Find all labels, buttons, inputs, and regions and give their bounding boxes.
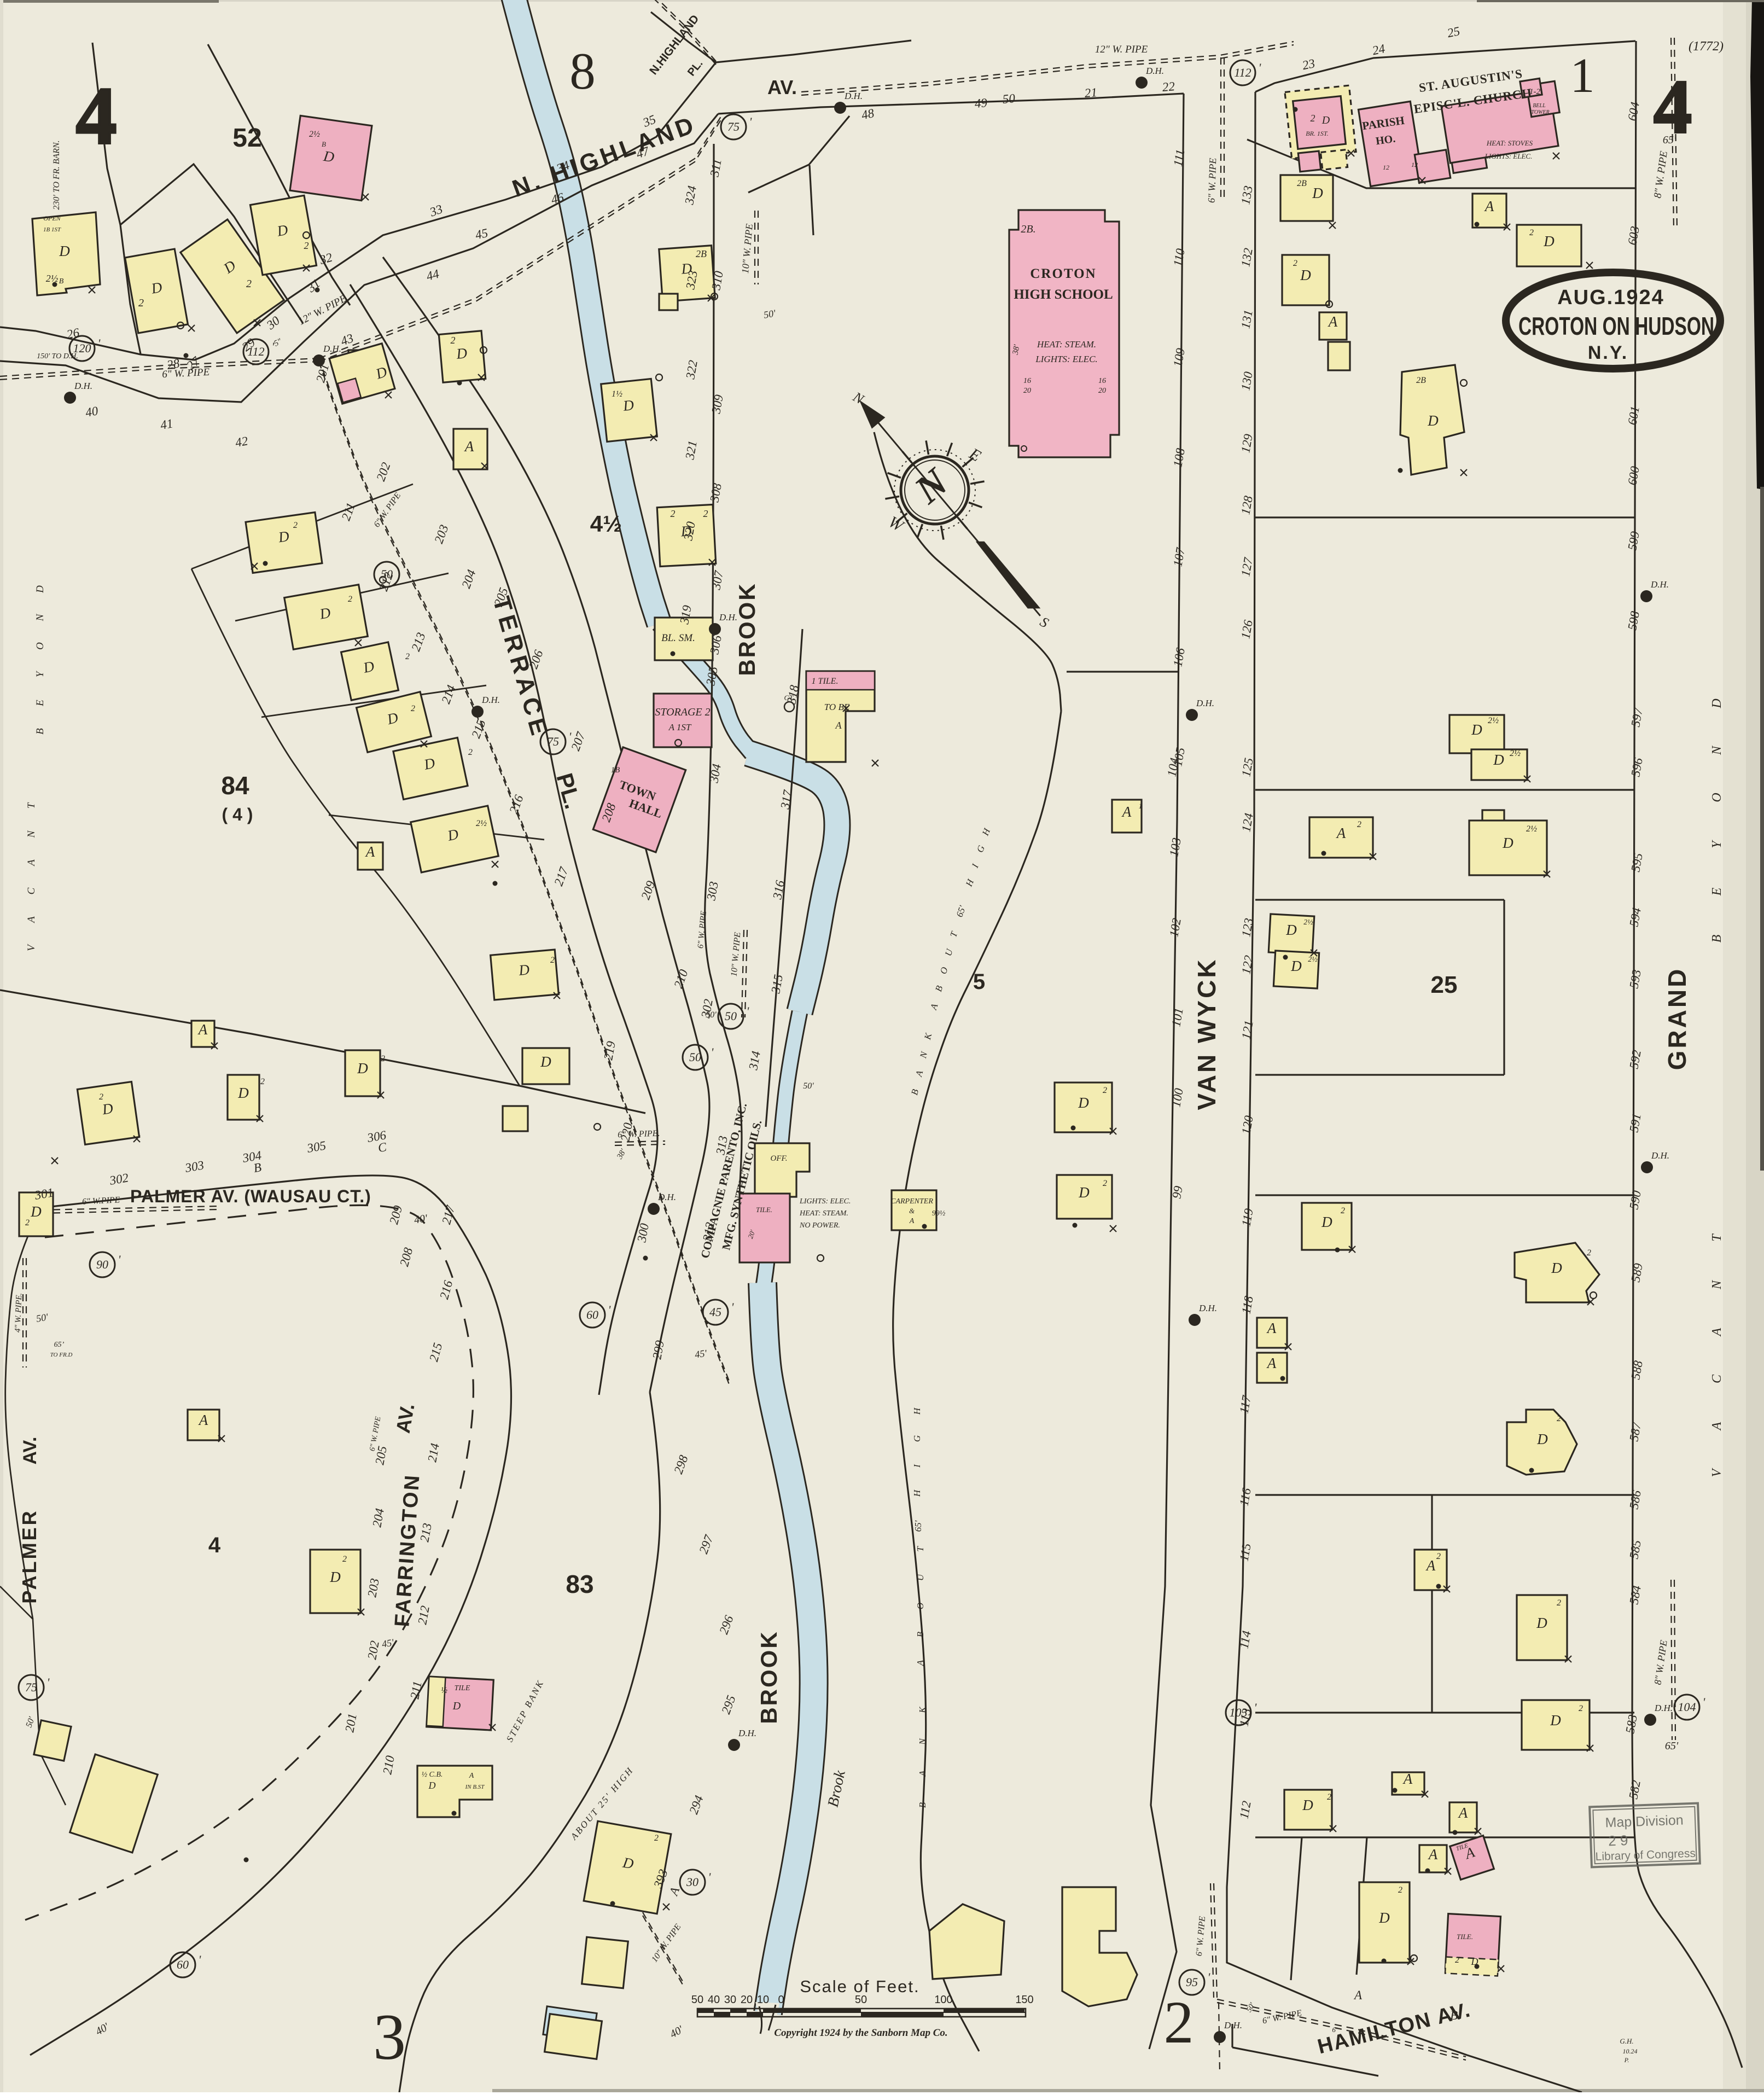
svg-text:T: T bbox=[915, 1546, 925, 1552]
svg-text:2: 2 bbox=[451, 335, 456, 346]
svg-text:B: B bbox=[34, 728, 46, 735]
svg-text:HEAT: STEAM.: HEAT: STEAM. bbox=[1037, 339, 1096, 350]
svg-text:D: D bbox=[1078, 1095, 1089, 1111]
svg-text:O: O bbox=[1710, 793, 1724, 802]
svg-text:D: D bbox=[237, 1085, 249, 1101]
svg-text:E: E bbox=[34, 700, 46, 707]
svg-text:U: U bbox=[915, 1573, 925, 1581]
svg-text:3: 3 bbox=[373, 2000, 406, 2073]
svg-text:A: A bbox=[1458, 1805, 1468, 1821]
svg-text:2: 2 bbox=[260, 1077, 265, 1086]
svg-text:CARPENTER: CARPENTER bbox=[890, 1197, 933, 1206]
svg-text:38': 38' bbox=[1011, 344, 1021, 356]
svg-text:2: 2 bbox=[1103, 1086, 1107, 1095]
svg-text:T: T bbox=[1710, 1233, 1724, 1242]
svg-text:D.H.: D.H. bbox=[1654, 1703, 1673, 1713]
svg-text:6" W.PIPE: 6" W.PIPE bbox=[82, 1195, 120, 1207]
svg-text:90: 90 bbox=[96, 1258, 108, 1271]
svg-text:100: 100 bbox=[934, 1994, 952, 2006]
svg-text:10.24: 10.24 bbox=[1623, 2047, 1638, 2055]
svg-text:P.: P. bbox=[1624, 2056, 1629, 2064]
svg-text:6': 6' bbox=[1332, 2026, 1337, 2034]
svg-text:2: 2 bbox=[703, 508, 708, 519]
svg-text:120: 120 bbox=[73, 341, 91, 355]
svg-text:12: 12 bbox=[1383, 164, 1389, 171]
svg-text:K: K bbox=[917, 1706, 928, 1714]
svg-text:10: 10 bbox=[757, 1994, 769, 2006]
svg-text:BL. SM.: BL. SM. bbox=[661, 632, 695, 644]
svg-text:6" W. PIPE: 6" W. PIPE bbox=[1206, 158, 1219, 203]
svg-text:40: 40 bbox=[708, 1994, 720, 2006]
svg-text:B.: B. bbox=[1450, 2009, 1461, 2022]
svg-text:2½: 2½ bbox=[1510, 749, 1521, 758]
svg-text:2: 2 bbox=[411, 704, 415, 713]
svg-text:D: D bbox=[1078, 1184, 1090, 1201]
svg-text:HEAT: STOVES: HEAT: STOVES bbox=[1486, 139, 1533, 147]
svg-text:HEAT: STEAM.: HEAT: STEAM. bbox=[799, 1209, 848, 1218]
svg-text:D.H.: D.H. bbox=[1651, 1150, 1669, 1161]
svg-text:84: 84 bbox=[221, 771, 249, 800]
svg-text:30: 30 bbox=[724, 1994, 736, 2006]
svg-text:B: B bbox=[915, 1631, 925, 1637]
svg-text:': ' bbox=[47, 1675, 50, 1689]
svg-text:45': 45' bbox=[694, 1347, 708, 1360]
svg-text:2: 2 bbox=[138, 297, 144, 309]
svg-text:N: N bbox=[917, 1738, 928, 1745]
svg-text:A: A bbox=[917, 1770, 928, 1777]
svg-text:2: 2 bbox=[1587, 1248, 1591, 1258]
svg-text:2: 2 bbox=[1436, 1552, 1441, 1561]
svg-text:D: D bbox=[455, 345, 468, 362]
svg-text:AV.: AV. bbox=[20, 1436, 40, 1464]
svg-text:20: 20 bbox=[741, 1994, 753, 2006]
svg-text:50: 50 bbox=[691, 1994, 703, 2006]
svg-text:0: 0 bbox=[778, 1994, 784, 2006]
svg-text:A: A bbox=[1328, 313, 1338, 330]
svg-text:': ' bbox=[199, 1953, 201, 1966]
svg-text:49: 49 bbox=[974, 96, 988, 110]
svg-text:2: 2 bbox=[1311, 113, 1315, 124]
svg-text:½: ½ bbox=[441, 1686, 447, 1695]
svg-text:4½: 4½ bbox=[590, 511, 622, 537]
svg-text:H: H bbox=[912, 1407, 922, 1415]
svg-text:2: 2 bbox=[1557, 1598, 1561, 1608]
svg-text:75: 75 bbox=[25, 1680, 37, 1694]
svg-text:': ' bbox=[749, 115, 752, 129]
svg-text:A: A bbox=[1336, 825, 1346, 841]
svg-text:D: D bbox=[1302, 1797, 1313, 1813]
svg-text:83: 83 bbox=[566, 1570, 593, 1598]
svg-text:LIGHTS: ELEC.: LIGHTS: ELEC. bbox=[799, 1197, 851, 1206]
svg-text:TILE: TILE bbox=[455, 1684, 470, 1692]
svg-text:D.H.: D.H. bbox=[657, 1192, 676, 1202]
svg-text:': ' bbox=[1259, 61, 1261, 74]
svg-text:D.H.: D.H. bbox=[1224, 2020, 1242, 2030]
svg-text:Scale of Feet.: Scale of Feet. bbox=[800, 1977, 919, 1996]
svg-text:4: 4 bbox=[76, 71, 117, 161]
svg-text:Copyright 1924 by the Sanborn: Copyright 1924 by the Sanborn Map Co. bbox=[774, 2027, 947, 2039]
svg-text:2: 2 bbox=[1327, 1793, 1331, 1802]
svg-text:D: D bbox=[1312, 185, 1323, 201]
svg-text:D: D bbox=[329, 1569, 341, 1585]
svg-text:2: 2 bbox=[405, 652, 410, 661]
svg-text:2: 2 bbox=[304, 240, 309, 251]
svg-text:D: D bbox=[34, 585, 46, 593]
svg-text:1-2: 1-2 bbox=[1529, 88, 1540, 96]
svg-text:': ' bbox=[708, 1870, 711, 1884]
svg-text:OPEN: OPEN bbox=[43, 214, 61, 222]
svg-text:D.H.: D.H. bbox=[1198, 1303, 1217, 1313]
svg-text:D: D bbox=[540, 1054, 551, 1070]
svg-text:B: B bbox=[917, 1802, 928, 1808]
svg-text:D: D bbox=[357, 1060, 368, 1076]
svg-text:1B 1ST: 1B 1ST bbox=[43, 226, 61, 233]
svg-text:12" W. PIPE: 12" W. PIPE bbox=[1095, 44, 1148, 55]
svg-text:C: C bbox=[26, 887, 37, 894]
svg-text:A: A bbox=[835, 720, 842, 731]
svg-text:50': 50' bbox=[803, 1081, 814, 1091]
svg-text:2½: 2½ bbox=[309, 130, 320, 139]
svg-text:B: B bbox=[1710, 934, 1724, 942]
svg-text:D: D bbox=[59, 243, 70, 259]
svg-text:': ' bbox=[1703, 1695, 1705, 1709]
svg-text:A: A bbox=[1428, 1846, 1438, 1863]
svg-text:4: 4 bbox=[208, 1533, 221, 1557]
svg-text:A: A bbox=[198, 1412, 208, 1428]
svg-text:D: D bbox=[622, 397, 635, 414]
svg-text:N.Y.: N.Y. bbox=[1588, 342, 1628, 363]
svg-text:2: 2 bbox=[25, 1218, 30, 1227]
svg-text:22: 22 bbox=[1162, 79, 1175, 94]
svg-text:D.H.: D.H. bbox=[719, 612, 737, 622]
svg-text:16: 16 bbox=[1023, 377, 1031, 385]
svg-text:D: D bbox=[1321, 114, 1330, 126]
svg-text:D: D bbox=[452, 1700, 461, 1712]
svg-text:12: 12 bbox=[1411, 161, 1418, 168]
svg-text:TILE.: TILE. bbox=[756, 1206, 772, 1214]
svg-text:PALMER AV. (WAUSAU CT.): PALMER AV. (WAUSAU CT.) bbox=[130, 1186, 371, 1206]
svg-text:D: D bbox=[1543, 233, 1555, 249]
svg-text:2: 2 bbox=[293, 521, 298, 530]
svg-text:40: 40 bbox=[84, 404, 99, 420]
svg-text:Map Division: Map Division bbox=[1605, 1813, 1684, 1831]
svg-text:LIGHTS: ELEC.: LIGHTS: ELEC. bbox=[1484, 152, 1533, 160]
svg-text:D: D bbox=[1378, 1910, 1390, 1926]
svg-text:BROOK: BROOK bbox=[734, 582, 760, 676]
svg-text:VAN WYCK: VAN WYCK bbox=[1192, 957, 1221, 1110]
svg-text:A: A bbox=[915, 1660, 925, 1666]
svg-text:111: 111 bbox=[1171, 148, 1187, 167]
svg-text:2: 2 bbox=[1455, 1956, 1459, 1965]
svg-text:CROTON: CROTON bbox=[1030, 266, 1096, 281]
svg-text:1: 1 bbox=[1139, 802, 1143, 811]
svg-text:2: 2 bbox=[1164, 1989, 1194, 2056]
svg-text:BR. 1ST.: BR. 1ST. bbox=[1306, 130, 1328, 137]
svg-text:2B.: 2B. bbox=[1021, 223, 1035, 235]
svg-text:G: G bbox=[912, 1435, 922, 1442]
svg-text:O: O bbox=[34, 642, 46, 650]
svg-text:D: D bbox=[1321, 1214, 1332, 1230]
svg-text:2: 2 bbox=[1357, 820, 1361, 829]
svg-text:': ' bbox=[711, 1045, 714, 1059]
svg-text:A: A bbox=[1425, 1557, 1436, 1574]
svg-text:95: 95 bbox=[1186, 1975, 1198, 1989]
svg-text:D: D bbox=[1290, 958, 1302, 974]
svg-text:2: 2 bbox=[342, 1555, 347, 1564]
svg-text:52: 52 bbox=[232, 124, 261, 153]
svg-text:D: D bbox=[1285, 922, 1297, 938]
svg-text:E: E bbox=[1710, 887, 1724, 896]
svg-text:1: 1 bbox=[1570, 49, 1595, 103]
svg-text:A 1ST: A 1ST bbox=[668, 722, 692, 732]
svg-text:B: B bbox=[59, 277, 64, 286]
svg-text:': ' bbox=[1208, 1970, 1210, 1984]
svg-text:2: 2 bbox=[348, 595, 352, 604]
svg-text:150: 150 bbox=[1015, 1994, 1033, 2006]
svg-text:2: 2 bbox=[381, 1054, 385, 1063]
svg-text:2½: 2½ bbox=[46, 273, 59, 284]
svg-text:60: 60 bbox=[586, 1308, 598, 1322]
svg-text:N: N bbox=[34, 613, 46, 621]
svg-text:2: 2 bbox=[246, 278, 252, 290]
svg-text:65': 65' bbox=[1665, 1740, 1679, 1752]
svg-text:': ' bbox=[118, 1253, 121, 1266]
svg-text:O: O bbox=[915, 1603, 925, 1609]
svg-text:D.H.: D.H. bbox=[1196, 698, 1214, 708]
svg-text:D: D bbox=[1710, 699, 1724, 708]
svg-text:2½: 2½ bbox=[1526, 824, 1537, 834]
svg-text:B: B bbox=[322, 140, 326, 148]
svg-text:TO FR.D: TO FR.D bbox=[50, 1352, 73, 1358]
svg-text:1 TILE.: 1 TILE. bbox=[812, 677, 839, 686]
svg-text:50: 50 bbox=[1002, 91, 1016, 106]
svg-text:2B: 2B bbox=[696, 248, 707, 259]
svg-text:D: D bbox=[517, 961, 531, 979]
svg-text:BROOK: BROOK bbox=[756, 1630, 782, 1724]
svg-text:A: A bbox=[1266, 1355, 1277, 1371]
svg-text:D: D bbox=[680, 522, 692, 539]
svg-text:30: 30 bbox=[686, 1875, 698, 1889]
svg-text:D: D bbox=[1551, 1260, 1562, 1276]
svg-text:41: 41 bbox=[159, 416, 174, 432]
svg-text:D.H.: D.H. bbox=[738, 1728, 756, 1738]
svg-text:A: A bbox=[197, 1021, 208, 1038]
svg-text:H: H bbox=[912, 1489, 922, 1497]
svg-text:A: A bbox=[26, 859, 37, 867]
svg-text:4" W. PIPE.: 4" W. PIPE. bbox=[14, 1293, 24, 1332]
svg-text:2½: 2½ bbox=[476, 819, 487, 828]
svg-text:': ' bbox=[747, 1004, 749, 1018]
svg-text:D: D bbox=[1427, 412, 1439, 429]
svg-text:2: 2 bbox=[550, 956, 555, 965]
svg-text:99: 99 bbox=[1169, 1185, 1185, 1200]
svg-text:1B: 1B bbox=[611, 766, 620, 775]
svg-text:OFF.: OFF. bbox=[771, 1154, 788, 1163]
svg-text:LIGHTS: ELEC.: LIGHTS: ELEC. bbox=[1035, 354, 1097, 364]
svg-text:25: 25 bbox=[1431, 971, 1458, 998]
svg-text:A: A bbox=[365, 843, 375, 860]
svg-text:GRAND: GRAND bbox=[1663, 967, 1691, 1070]
svg-text:75: 75 bbox=[727, 120, 740, 133]
svg-text:D: D bbox=[680, 260, 693, 277]
svg-text:(1772): (1772) bbox=[1689, 39, 1724, 54]
svg-text:IN B.ST: IN B.ST bbox=[465, 1784, 485, 1790]
svg-text:20: 20 bbox=[1023, 387, 1031, 395]
svg-text:2: 2 bbox=[99, 1092, 103, 1102]
svg-text:D.H.: D.H. bbox=[844, 91, 863, 101]
svg-text:A: A bbox=[469, 1772, 474, 1780]
svg-text:N: N bbox=[1710, 745, 1724, 755]
svg-text:D: D bbox=[1300, 267, 1311, 283]
svg-text:2: 2 bbox=[671, 508, 676, 519]
svg-text:': ' bbox=[98, 336, 101, 350]
svg-text:104: 104 bbox=[1678, 1700, 1696, 1714]
svg-text:A: A bbox=[26, 916, 37, 924]
svg-text:D: D bbox=[30, 1203, 42, 1220]
svg-text:A: A bbox=[1402, 1771, 1413, 1787]
svg-text:2: 2 bbox=[1293, 259, 1297, 268]
svg-text:2½: 2½ bbox=[1303, 918, 1313, 927]
svg-text:2 9: 2 9 bbox=[1608, 1832, 1628, 1849]
svg-text:16: 16 bbox=[1098, 377, 1106, 385]
svg-text:A: A bbox=[1121, 804, 1132, 820]
svg-text:½ C.B.: ½ C.B. bbox=[422, 1771, 443, 1779]
svg-text:75: 75 bbox=[547, 735, 559, 748]
svg-text:PALMER: PALMER bbox=[18, 1509, 40, 1603]
svg-text:65': 65' bbox=[913, 1520, 923, 1532]
svg-text:50: 50 bbox=[725, 1009, 737, 1023]
svg-text:A: A bbox=[464, 438, 474, 455]
svg-text:5: 5 bbox=[973, 970, 985, 994]
svg-text:1½: 1½ bbox=[612, 389, 622, 399]
svg-text:2: 2 bbox=[1557, 1414, 1561, 1423]
svg-text:D: D bbox=[1550, 1712, 1561, 1729]
svg-text:N: N bbox=[26, 830, 37, 838]
svg-text:40': 40' bbox=[414, 1212, 429, 1226]
svg-text:CROTON ON HUDSON: CROTON ON HUDSON bbox=[1518, 312, 1714, 340]
svg-text:V: V bbox=[1710, 1468, 1724, 1477]
svg-text:C: C bbox=[1710, 1374, 1724, 1383]
svg-text:42: 42 bbox=[234, 434, 249, 450]
svg-text:D: D bbox=[428, 1780, 436, 1791]
svg-text:&: & bbox=[909, 1207, 915, 1215]
svg-text:65': 65' bbox=[1663, 134, 1676, 146]
svg-text:BELL: BELL bbox=[1533, 103, 1546, 109]
svg-text:': ' bbox=[1254, 1701, 1257, 1714]
svg-text:112: 112 bbox=[1234, 66, 1251, 79]
svg-text:2: 2 bbox=[654, 1834, 659, 1843]
svg-text:28: 28 bbox=[166, 356, 181, 372]
svg-text:60: 60 bbox=[177, 1958, 189, 1971]
svg-text:2: 2 bbox=[1341, 1206, 1345, 1215]
svg-text:2: 2 bbox=[1529, 228, 1534, 237]
svg-text:2: 2 bbox=[1398, 1885, 1402, 1895]
svg-text:AV.: AV. bbox=[767, 76, 797, 98]
svg-text:D.H.: D.H. bbox=[323, 344, 341, 354]
svg-text:A: A bbox=[1710, 1328, 1724, 1337]
svg-text:2: 2 bbox=[1579, 1704, 1583, 1713]
svg-text:2½: 2½ bbox=[1308, 956, 1318, 964]
svg-text:AUG.1924: AUG.1924 bbox=[1557, 286, 1664, 309]
svg-text:8: 8 bbox=[569, 42, 596, 100]
svg-text:': ' bbox=[731, 1300, 734, 1314]
svg-text:2: 2 bbox=[468, 748, 473, 757]
svg-text:230' TO FR. BARN.: 230' TO FR. BARN. bbox=[52, 140, 61, 209]
svg-text:HIGH SCHOOL: HIGH SCHOOL bbox=[1014, 287, 1113, 302]
svg-text:2B: 2B bbox=[1297, 179, 1307, 188]
svg-text:A: A bbox=[1266, 1320, 1277, 1336]
svg-text:2: 2 bbox=[1103, 1179, 1107, 1188]
svg-text:A: A bbox=[1484, 198, 1494, 214]
svg-text:D: D bbox=[1471, 721, 1482, 738]
svg-text:D: D bbox=[1536, 1615, 1547, 1631]
svg-text:STORAGE 2: STORAGE 2 bbox=[655, 706, 710, 718]
svg-text:20: 20 bbox=[1098, 387, 1106, 395]
svg-text:': ' bbox=[608, 1303, 611, 1317]
svg-text:NO POWER.: NO POWER. bbox=[799, 1221, 840, 1230]
svg-text:2B: 2B bbox=[1416, 376, 1426, 385]
svg-text:TO BE: TO BE bbox=[824, 702, 850, 712]
svg-text:D: D bbox=[1502, 835, 1513, 851]
svg-text:D.H.: D.H. bbox=[1650, 579, 1669, 590]
svg-text:( 4 ): ( 4 ) bbox=[222, 805, 253, 824]
svg-text:21: 21 bbox=[1084, 85, 1098, 100]
svg-text:2½: 2½ bbox=[1488, 716, 1499, 725]
svg-text:99½: 99½ bbox=[932, 1209, 946, 1218]
svg-text:G.H.: G.H. bbox=[1620, 2037, 1633, 2045]
svg-text:A: A bbox=[1353, 1988, 1363, 2002]
svg-text:D: D bbox=[1536, 1431, 1548, 1447]
svg-text:D.H.: D.H. bbox=[481, 695, 500, 705]
svg-text:A: A bbox=[909, 1217, 915, 1225]
svg-text:': ' bbox=[403, 562, 405, 576]
svg-text:65’: 65’ bbox=[54, 1341, 65, 1349]
svg-text:TOWER: TOWER bbox=[1531, 109, 1549, 115]
svg-text:D.H.: D.H. bbox=[74, 381, 92, 391]
svg-text:D: D bbox=[1493, 752, 1504, 768]
svg-text:45: 45 bbox=[709, 1305, 721, 1319]
svg-text:A: A bbox=[1710, 1422, 1724, 1431]
svg-text:D.H.: D.H. bbox=[1145, 66, 1164, 76]
svg-text:N: N bbox=[1710, 1279, 1724, 1290]
svg-text:T: T bbox=[26, 802, 37, 808]
svg-text:50: 50 bbox=[689, 1050, 701, 1064]
svg-text:TILE.: TILE. bbox=[1457, 1933, 1473, 1941]
